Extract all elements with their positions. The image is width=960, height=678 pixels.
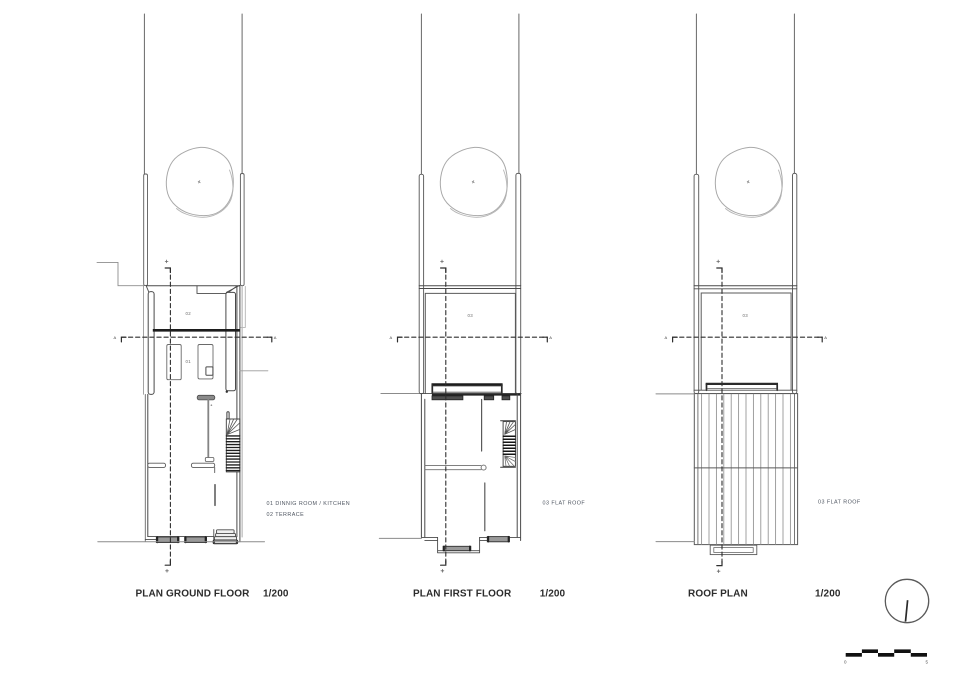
svg-text:01 DINNIG ROOM / KITCHEN: 01 DINNIG ROOM / KITCHEN	[267, 501, 351, 507]
svg-text:A: A	[114, 335, 117, 340]
svg-text:A: A	[274, 335, 277, 340]
svg-text:1/200: 1/200	[815, 589, 841, 600]
svg-text:1/200: 1/200	[263, 589, 289, 600]
svg-text:03: 03	[743, 313, 749, 318]
svg-text:1/200: 1/200	[540, 589, 566, 600]
svg-text:03: 03	[468, 313, 474, 318]
svg-text:PLAN GROUND FLOOR: PLAN GROUND FLOOR	[136, 589, 251, 600]
svg-text:A: A	[665, 335, 668, 340]
svg-text:03 FLAT ROOF: 03 FLAT ROOF	[818, 500, 861, 506]
svg-text:A: A	[824, 335, 827, 340]
svg-text:01: 01	[186, 359, 192, 364]
svg-text:PLAN FIRST FLOOR: PLAN FIRST FLOOR	[413, 589, 512, 600]
svg-text:A: A	[549, 335, 552, 340]
svg-text:ROOF PLAN: ROOF PLAN	[688, 589, 748, 600]
svg-text:A: A	[390, 335, 393, 340]
svg-text:03 FLAT ROOF: 03 FLAT ROOF	[543, 501, 586, 507]
svg-text:02: 02	[186, 311, 192, 316]
svg-text:02 TERRACE: 02 TERRACE	[267, 512, 305, 518]
